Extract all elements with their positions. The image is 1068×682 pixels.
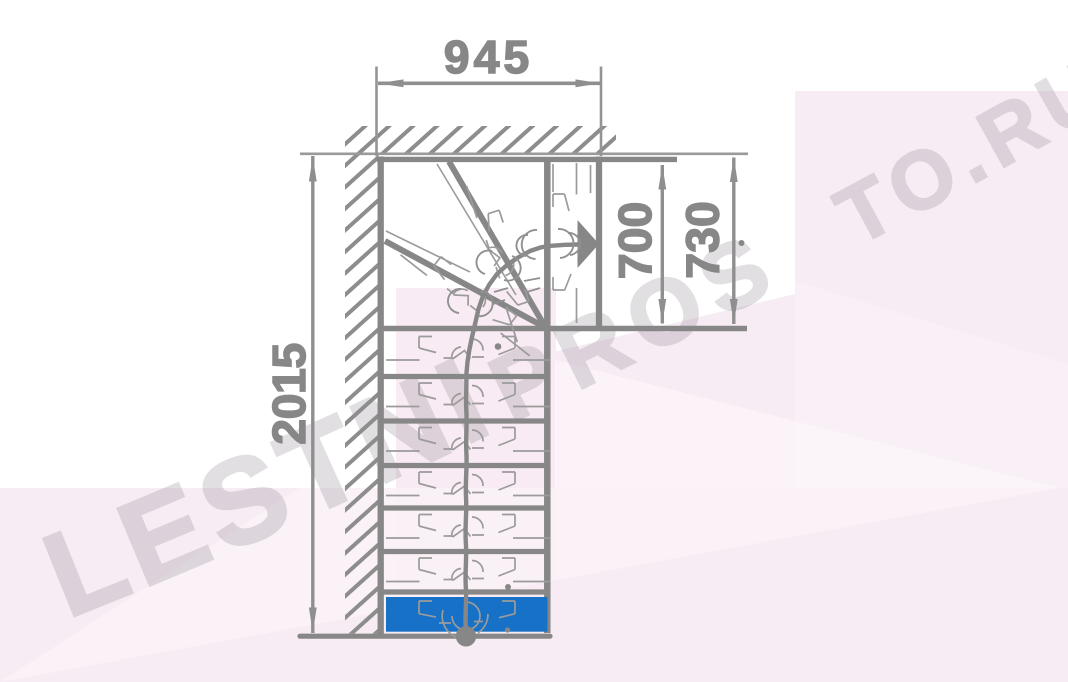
svg-text:945: 945: [444, 31, 534, 83]
svg-text:700: 700: [609, 202, 661, 280]
svg-text:2015: 2015: [263, 343, 315, 444]
svg-text:730: 730: [677, 201, 729, 279]
